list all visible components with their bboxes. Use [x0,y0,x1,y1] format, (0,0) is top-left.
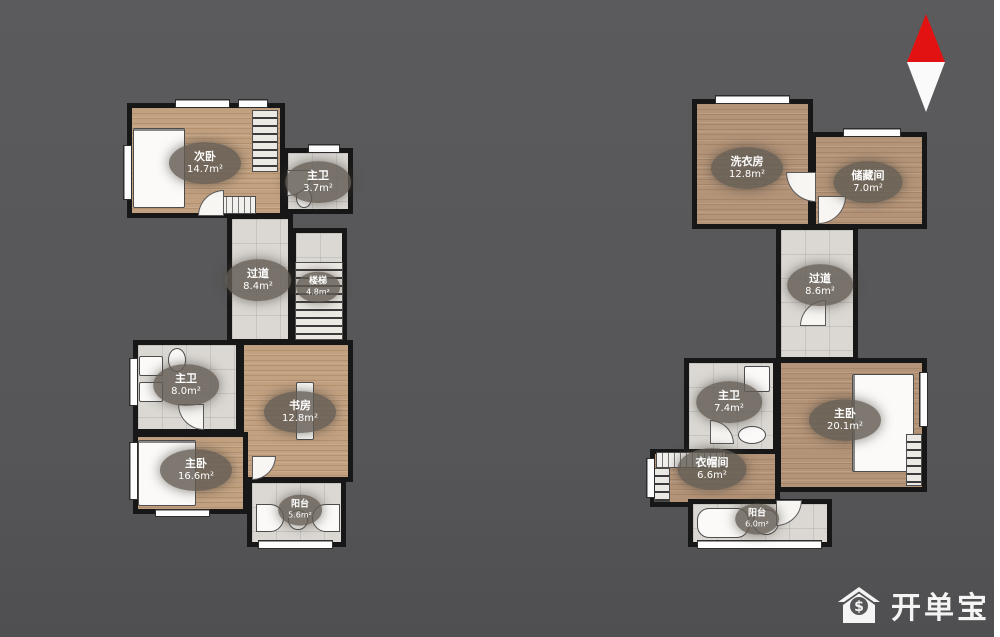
window [843,128,901,137]
room-name: 过道 [805,272,835,286]
room-label: 主卫 8.0m² [153,364,219,406]
window [919,372,928,427]
window [129,442,138,500]
room-name: 主卫 [714,389,744,403]
room-label: 阳台 6.0m² [735,504,779,535]
room-name: 次卧 [187,150,223,164]
room-name: 主卧 [827,407,863,421]
room-area: 6.0m² [745,520,769,530]
room-area: 7.0m² [852,183,885,195]
room-label: 阳台 5.6m² [278,495,322,526]
window [258,540,333,549]
room-name: 楼梯 [306,277,330,288]
room-area: 12.8m² [282,413,318,425]
room-name: 阳台 [745,509,769,520]
watermark-text: 开单宝 [891,583,990,627]
window [646,458,655,498]
room-label: 主卧 20.1m² [809,399,881,441]
house-dollar-icon: $ [836,585,882,625]
room-name: 衣帽间 [696,456,729,470]
room-area: 8.6m² [805,286,835,298]
north-arrow-icon [907,14,945,112]
floorplan-canvas: 次卧 14.7m² 主卫 3.7m² 过道 8.4m² 楼梯 4.8m² 主卫 … [0,0,1000,637]
room-label: 储藏间 7.0m² [834,161,903,203]
window [308,144,340,153]
room-name: 储藏间 [852,169,885,183]
room-area: 14.7m² [187,164,223,176]
room-name: 主卧 [178,457,214,471]
watermark-logo: $ 开单宝 [836,583,990,627]
room-label: 书房 12.8m² [264,391,336,433]
room-area: 4.8m² [306,288,330,298]
window [238,99,268,108]
svg-text:$: $ [854,599,864,615]
room-name: 过道 [243,267,273,281]
room-label: 主卫 7.4m² [696,381,762,423]
toilet [738,426,766,444]
room-area: 7.4m² [714,403,744,415]
room-label: 主卧 16.6m² [160,449,232,491]
room-name: 主卫 [171,372,201,386]
north-arrow-white-half [907,62,945,112]
room-label: 洗衣房 12.8m² [711,147,783,189]
room-name: 书房 [282,399,318,413]
room-area: 8.4m² [243,281,273,293]
room-area: 5.6m² [288,511,312,521]
window [155,509,210,517]
wardrobe-icon [654,468,670,502]
window [129,358,138,406]
room-label: 过道 8.4m² [225,259,291,301]
wardrobe-icon [906,434,922,486]
window [697,540,822,549]
room-area: 6.6m² [696,470,729,482]
room-area: 16.6m² [178,471,214,483]
room-area: 20.1m² [827,421,863,433]
window [175,99,230,108]
room-area: 12.8m² [729,169,765,181]
north-arrow-red-half [907,14,945,62]
room-area: 8.0m² [171,386,201,398]
window [123,145,132,200]
room-label: 主卫 3.7m² [285,161,351,203]
room-label: 过道 8.6m² [787,264,853,306]
room-label: 次卧 14.7m² [169,142,241,184]
wardrobe-icon [252,110,278,172]
room-label: 楼梯 4.8m² [296,272,340,303]
room-name: 洗衣房 [729,155,765,169]
room-label: 衣帽间 6.6m² [678,448,747,490]
room-area: 3.7m² [303,183,333,195]
room-name: 阳台 [288,500,312,511]
room-name: 主卫 [303,169,333,183]
window [715,95,790,104]
right-edge-strip [994,0,1000,637]
